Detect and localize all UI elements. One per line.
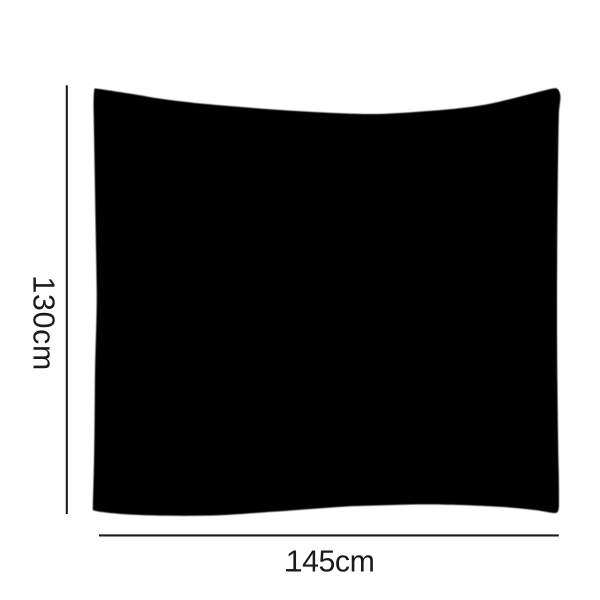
svg-text:130cm: 130cm [26,277,59,371]
svg-text:145cm: 145cm [286,545,375,578]
